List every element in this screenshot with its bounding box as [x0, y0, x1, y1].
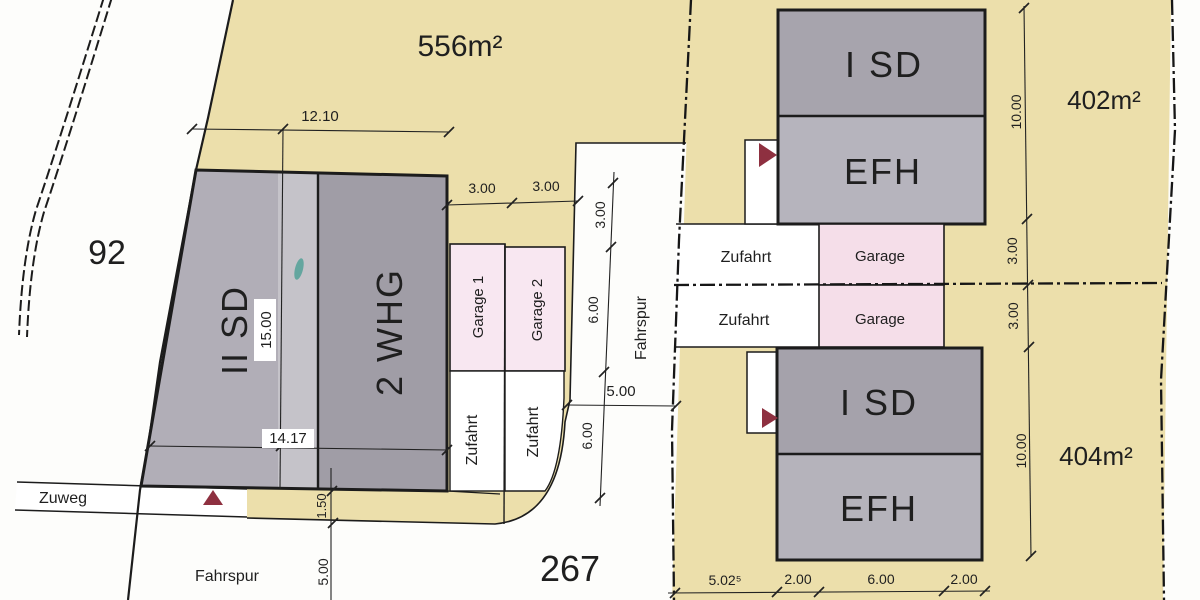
- svg-text:5.00: 5.00: [606, 383, 635, 400]
- label-area-402: 402m²: [1067, 85, 1141, 115]
- svg-text:6.00: 6.00: [867, 571, 894, 587]
- svg-text:15.00: 15.00: [258, 311, 275, 349]
- label-garage-1: Garage 1: [470, 276, 487, 339]
- svg-text:3.00: 3.00: [592, 201, 608, 228]
- svg-text:1.50: 1.50: [314, 493, 329, 518]
- svg-text:2.00: 2.00: [784, 571, 811, 587]
- label-zuweg: Zuweg: [39, 490, 87, 507]
- label-zufahrt-right-1: Zufahrt: [721, 249, 772, 266]
- label-garage-2: Garage 2: [529, 279, 546, 342]
- building-left-part1-label: II SD: [214, 285, 255, 375]
- svg-text:3.00: 3.00: [1005, 302, 1021, 329]
- label-zufahrt-right-2: Zufahrt: [719, 312, 770, 329]
- building-rb-lower-label: EFH: [840, 488, 918, 529]
- building-left-part2-label: 2 WHG: [369, 268, 410, 396]
- label-zufahrt-left-1: Zufahrt: [464, 414, 481, 465]
- label-garage-r2: Garage: [855, 311, 905, 328]
- label-garage-r1: Garage: [855, 248, 905, 265]
- label-fahrspur-vertical: Fahrspur: [633, 295, 650, 360]
- left-road-edge-double-line: [19, 0, 112, 337]
- label-zufahrt-left-2: Zufahrt: [525, 406, 542, 457]
- svg-text:6.00: 6.00: [579, 422, 595, 449]
- svg-text:6.00: 6.00: [585, 296, 601, 323]
- svg-text:3.00: 3.00: [532, 178, 559, 194]
- site-plan: II SD 2 WHG I SD EFH I SD EFH 12.10 3.00…: [0, 0, 1200, 600]
- label-area-404: 404m²: [1059, 441, 1133, 471]
- svg-text:3.00: 3.00: [1004, 237, 1020, 264]
- building-rt-upper-label: I SD: [845, 44, 923, 85]
- building-rt-lower-label: EFH: [844, 151, 922, 192]
- svg-text:5.00: 5.00: [315, 558, 331, 585]
- svg-text:5.02⁵: 5.02⁵: [708, 572, 741, 588]
- label-parcel-92: 92: [88, 234, 126, 272]
- dim-lane-chain: 3.00 6.00 6.00: [579, 172, 618, 506]
- svg-text:10.00: 10.00: [1013, 433, 1029, 468]
- building-rb-upper-label: I SD: [840, 382, 918, 423]
- svg-text:12.10: 12.10: [301, 108, 339, 125]
- svg-text:14.17: 14.17: [269, 430, 307, 447]
- svg-text:3.00: 3.00: [468, 180, 495, 196]
- dim-lane-width: 5.00: [562, 383, 681, 411]
- svg-text:10.00: 10.00: [1008, 94, 1024, 129]
- label-parcel-267: 267: [540, 548, 600, 589]
- label-fahrspur-bottom: Fahrspur: [195, 568, 260, 585]
- label-area-556: 556m²: [417, 30, 502, 63]
- svg-text:2.00: 2.00: [950, 571, 977, 587]
